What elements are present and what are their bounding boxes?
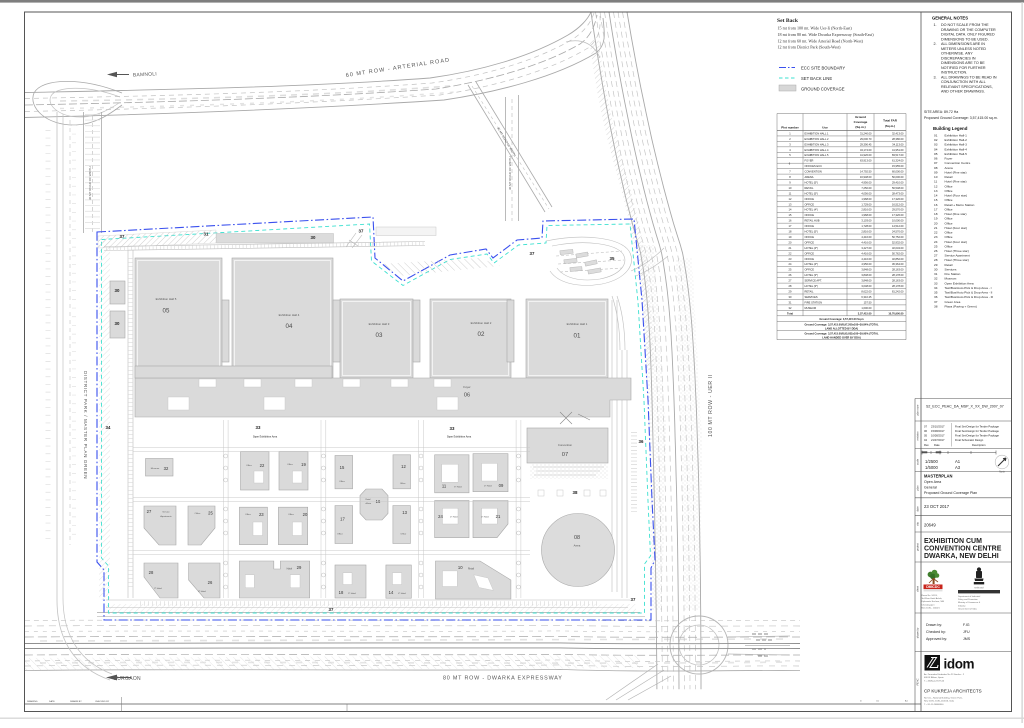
svg-text:Government of India: Government of India: [958, 607, 978, 610]
svg-text:4* Hotel: 4* Hotel: [484, 485, 492, 488]
svg-text:S2_ECC_PEAC_DA_MSP_X_XX_DW_200: S2_ECC_PEAC_DA_MSP_X_XX_DW_2007_07: [926, 405, 1004, 409]
svg-text:OTHERWISE. ANY: OTHERWISE. ANY: [941, 52, 973, 56]
svg-text:RELEVANT SPECIFICATIONS,: RELEVANT SPECIFICATIONS,: [941, 85, 993, 89]
svg-text:Open Exhibition Area: Open Exhibition Area: [945, 281, 974, 285]
svg-text:36: 36: [639, 439, 644, 444]
svg-text:F.IG: F.IG: [963, 623, 970, 627]
svg-text:33: 33: [934, 281, 938, 285]
svg-text:34: 34: [934, 286, 938, 290]
svg-text:EXHIBITION HALL 5: EXHIBITION HALL 5: [805, 153, 830, 157]
svg-text:28: 28: [934, 258, 938, 262]
svg-text:Set Back: Set Back: [777, 18, 799, 24]
svg-text:OFFICE: OFFICE: [805, 240, 815, 244]
svg-text:01: 01: [574, 333, 581, 340]
svg-text:36: 36: [934, 295, 938, 299]
svg-text:General: General: [924, 486, 937, 490]
svg-text:18: 18: [339, 590, 344, 595]
svg-text:Hotel: Hotel: [287, 568, 293, 571]
svg-text:Office: Office: [945, 198, 953, 202]
svg-text:OFFICE: OFFICE: [805, 257, 815, 261]
svg-text:50,752.00: 50,752.00: [892, 235, 904, 239]
svg-text:80 MT ROW - DWARKA EXPRESSWAY: 80 MT ROW - DWARKA EXPRESSWAY: [443, 676, 563, 682]
svg-text:A3: A3: [955, 465, 961, 470]
svg-text:Taxi/Bus/Auto Pick & Drop Area: Taxi/Bus/Auto Pick & Drop Area - III: [945, 295, 994, 299]
svg-text:INSTRUCTION.: INSTRUCTION.: [941, 71, 967, 75]
svg-text:28,380.00: 28,380.00: [892, 137, 904, 141]
svg-text:36,364.00: 36,364.00: [892, 262, 904, 266]
svg-text:16,512.00: 16,512.00: [892, 202, 904, 206]
svg-text:81,242.00: 81,242.00: [892, 289, 904, 293]
svg-text:14,792.50: 14,792.50: [860, 170, 872, 174]
svg-text:26: 26: [208, 580, 213, 585]
svg-text:MUSEUM: MUSEUM: [805, 306, 817, 310]
svg-text:LAND ALLOTTED BY DDA): LAND ALLOTTED BY DDA): [825, 326, 858, 330]
svg-text:DRAWN BY: DRAWN BY: [70, 700, 82, 703]
svg-text:GROUND COVERAGE: GROUND COVERAGE: [801, 87, 845, 92]
svg-text:34: 34: [106, 425, 111, 430]
svg-text:10/08/2017: 10/08/2017: [931, 434, 945, 438]
svg-text:ALL DRAWINGS TO BE READ IN: ALL DRAWINGS TO BE READ IN: [941, 75, 997, 79]
svg-text:29: 29: [297, 565, 302, 570]
svg-text:Foyer: Foyer: [463, 385, 470, 389]
svg-text:14: 14: [389, 590, 394, 595]
svg-text:30 MT ROAD OF WIDTH: 30 MT ROAD OF WIDTH: [88, 166, 92, 200]
svg-text:23 OCT 2017: 23 OCT 2017: [924, 504, 950, 509]
svg-text:HOTEL (3*): HOTEL (3*): [805, 273, 819, 277]
svg-text:28,473.00: 28,473.00: [892, 191, 904, 195]
svg-text:37: 37: [631, 597, 636, 602]
svg-text:1.: 1.: [934, 23, 937, 27]
svg-text:OFFICE: OFFICE: [805, 235, 815, 239]
svg-text:3.: 3.: [934, 75, 937, 79]
svg-text:T. +91-11-26868500: T. +91-11-26868500: [924, 704, 944, 706]
svg-text:Office: Office: [337, 534, 343, 536]
svg-text:41,926.00: 41,926.00: [860, 153, 872, 157]
svg-text:Taxi/Bus/Auto Pick & Drop Area: Taxi/Bus/Auto Pick & Drop Area - II: [945, 291, 993, 295]
svg-text:Hotel (Four star): Hotel (Four star): [945, 240, 968, 244]
svg-text:Retail: Retail: [945, 175, 953, 179]
svg-text:33: 33: [450, 426, 455, 431]
svg-text:24,570.00: 24,570.00: [892, 230, 904, 234]
svg-text:17,326.00: 17,326.00: [892, 197, 904, 201]
svg-text:31: 31: [204, 232, 209, 237]
svg-text:Office: Office: [401, 534, 407, 536]
svg-text:17: 17: [934, 207, 938, 211]
svg-text:21: 21: [496, 514, 501, 519]
svg-text:56,548.00: 56,548.00: [892, 186, 904, 190]
svg-text:03: 03: [376, 332, 383, 339]
svg-text:Use: Use: [822, 126, 828, 130]
svg-text:OFFICE: OFFICE: [805, 224, 815, 228]
svg-text:30: 30: [115, 321, 120, 326]
svg-text:1,600.00: 1,600.00: [861, 306, 872, 310]
svg-text:idom: idom: [944, 657, 975, 672]
svg-text:3,103.00: 3,103.00: [861, 219, 872, 223]
svg-text:37: 37: [359, 229, 364, 234]
svg-text:32,413.00: 32,413.00: [892, 131, 904, 135]
svg-text:Coverage: Coverage: [854, 120, 868, 124]
svg-text:43,174.00: 43,174.00: [860, 148, 872, 152]
svg-text:SERVICE APT.: SERVICE APT.: [805, 279, 823, 283]
svg-text:25: 25: [934, 244, 938, 248]
svg-text:Services: Services: [945, 267, 957, 271]
svg-text:New Delhi, Delhi-110016, India: New Delhi, Delhi-110016, India: [924, 701, 955, 703]
svg-text:Service Apartment: Service Apartment: [945, 254, 970, 258]
svg-text:Exhibition Hall-1: Exhibition Hall-1: [945, 134, 968, 138]
svg-text:Retail: Retail: [945, 263, 953, 267]
svg-text:4,416.00: 4,416.00: [861, 240, 872, 244]
svg-text:(Sq.m.): (Sq.m.): [855, 125, 865, 129]
svg-text:16,948.00: 16,948.00: [860, 175, 872, 179]
svg-text:Office: Office: [288, 514, 294, 516]
svg-text:28: 28: [149, 570, 154, 575]
svg-text:5* Hotel: 5* Hotel: [454, 486, 462, 489]
svg-text:Final Set-Design for Tender Pa: Final Set-Design for Tender Package: [955, 424, 999, 428]
svg-text:METERS UNLESS NOTED: METERS UNLESS NOTED: [941, 47, 986, 51]
svg-text:OFFICE: OFFICE: [805, 268, 815, 272]
svg-text:Office: Office: [945, 217, 953, 221]
svg-text:CONVENTION: CONVENTION: [805, 170, 822, 174]
svg-text:6,310.25: 6,310.25: [861, 295, 872, 299]
svg-text:2,816.00: 2,816.00: [861, 208, 872, 212]
svg-text:DIGITAL DATA. ONLY FIGURED: DIGITAL DATA. ONLY FIGURED: [941, 33, 995, 37]
svg-text:37: 37: [934, 300, 938, 304]
svg-text:1,729.00: 1,729.00: [861, 202, 872, 206]
svg-text:Arena: Arena: [574, 545, 581, 548]
svg-text:NOTIFIED FOR FURTHER: NOTIFIED FOR FURTHER: [941, 66, 986, 70]
svg-text:Convention: Convention: [558, 443, 573, 447]
svg-text:Hotel (Five star): Hotel (Five star): [945, 212, 967, 216]
svg-text:Hotel (Three star): Hotel (Three star): [945, 258, 969, 262]
svg-text:Ground: Ground: [855, 115, 866, 119]
svg-text:Office: Office: [945, 244, 953, 248]
svg-text:HOTEL (3*): HOTEL (3*): [805, 284, 819, 288]
svg-text:32: 32: [934, 277, 938, 281]
svg-text:New Delhi - 110021: New Delhi - 110021: [922, 607, 941, 609]
svg-text:Office: Office: [945, 189, 953, 193]
svg-text:1/2500: 1/2500: [925, 459, 938, 464]
svg-text:HOTEL (5*): HOTEL (5*): [805, 180, 819, 184]
svg-text:Arena: Arena: [945, 166, 954, 170]
svg-text:Drawn by:: Drawn by:: [926, 623, 942, 627]
svg-text:8,622.00: 8,622.00: [861, 289, 872, 293]
svg-text:Total FAR: Total FAR: [883, 119, 898, 123]
svg-text:11: 11: [934, 180, 937, 184]
svg-text:41,951.00: 41,951.00: [892, 148, 904, 152]
svg-text:MASTERPLAN: MASTERPLAN: [924, 474, 952, 479]
svg-text:16: 16: [934, 203, 938, 207]
svg-text:38: 38: [934, 304, 938, 308]
svg-text:Office: Office: [287, 464, 293, 466]
svg-text:Green Area: Green Area: [945, 300, 961, 304]
svg-text:HOTEL (4*): HOTEL (4*): [805, 208, 819, 212]
svg-text:28,163.00: 28,163.00: [892, 268, 904, 272]
svg-text:4,056.00: 4,056.00: [861, 191, 872, 195]
svg-text:RETAIL: RETAIL: [805, 186, 814, 190]
svg-text:34,113.00: 34,113.00: [892, 142, 904, 146]
svg-text:DISTRICT PARK / MASTER PLAN GR: DISTRICT PARK / MASTER PLAN GREEN: [83, 371, 88, 479]
svg-text:23: 23: [934, 235, 938, 239]
svg-text:Office: Office: [945, 231, 953, 235]
svg-text:3rd Floor Hotel Ashok,: 3rd Floor Hotel Ashok,: [922, 597, 943, 600]
svg-text:02: 02: [934, 138, 938, 142]
svg-text:17,326.00: 17,326.00: [892, 213, 904, 217]
svg-text:03: 03: [934, 143, 938, 147]
svg-text:2.: 2.: [934, 42, 937, 46]
svg-text:1/5000: 1/5000: [925, 465, 938, 470]
svg-text:05: 05: [163, 308, 170, 315]
svg-text:28,178.00: 28,178.00: [892, 273, 904, 277]
svg-text:24: 24: [934, 240, 938, 244]
svg-text:12: 12: [934, 184, 938, 188]
svg-text:EXHIBITION HALL 2: EXHIBITION HALL 2: [805, 137, 830, 141]
svg-text:HOTEL (4*): HOTEL (4*): [805, 246, 819, 250]
svg-text:3,848.00: 3,848.00: [861, 279, 872, 283]
svg-text:Proposed Ground Coverage: 3,57: Proposed Ground Coverage: 3,57,415.00 sq…: [924, 116, 998, 120]
svg-text:30 MT ROAD OF WIDTH: 30 MT ROAD OF WIDTH: [508, 156, 512, 190]
svg-text:RETAIL: RETAIL: [805, 289, 814, 293]
svg-text:client: client: [916, 586, 920, 592]
svg-text:31,240.00: 31,240.00: [860, 131, 872, 135]
svg-text:32,852.00: 32,852.00: [892, 257, 904, 261]
svg-text:24: 24: [438, 514, 443, 519]
svg-text:Final Set-Design for Tender Pa: Final Set-Design for Tender Package: [955, 429, 999, 433]
svg-text:Office: Office: [945, 184, 953, 188]
svg-text:63,913.00: 63,913.00: [860, 159, 872, 163]
svg-text:Ground Coverage: 3,57,415.00/8: Ground Coverage: 3,57,415.00/8,97,200x10…: [804, 323, 878, 327]
svg-text:Office: Office: [339, 481, 345, 483]
svg-text:12 mt from 60 mt. Wide Arteria: 12 mt from 60 mt. Wide Arterial Road (No…: [778, 38, 864, 43]
svg-text:Exhibition Hall-3: Exhibition Hall-3: [945, 143, 968, 147]
svg-text:50,762.00: 50,762.00: [892, 251, 904, 255]
svg-text:29: 29: [934, 263, 938, 267]
svg-text:33: 33: [256, 425, 261, 430]
svg-text:DRAWING OR THE COMPUTER: DRAWING OR THE COMPUTER: [941, 28, 996, 32]
svg-text:RETAIL HUB: RETAIL HUB: [805, 219, 820, 223]
svg-text:project: project: [916, 543, 920, 552]
svg-text:Exhibition Hall 3: Exhibition Hall 3: [369, 322, 390, 326]
svg-text:OFFICES ECC: OFFICES ECC: [805, 164, 823, 168]
svg-text:plan num: plan num: [916, 404, 920, 417]
svg-text:DISCREPANCIES IN: DISCREPANCIES IN: [941, 56, 976, 60]
svg-text:20: 20: [303, 512, 308, 517]
svg-text:4,416.00: 4,416.00: [861, 257, 872, 261]
svg-text:Ground Coverage: 3,57,415.00 S: Ground Coverage: 3,57,415.00 Sq.m: [819, 317, 864, 321]
svg-text:4* Hotel: 4* Hotel: [450, 516, 458, 519]
svg-text:4,956.00: 4,956.00: [861, 262, 872, 266]
svg-text:08: 08: [934, 166, 938, 170]
svg-text:DRAWING: DRAWING: [27, 700, 38, 703]
svg-text:23/10/2017: 23/10/2017: [931, 424, 945, 428]
svg-text:14: 14: [934, 194, 938, 198]
svg-text:Room No. 341 B,: Room No. 341 B,: [922, 595, 938, 597]
svg-text:4,956.00: 4,956.00: [861, 180, 872, 184]
svg-text:OFFICE: OFFICE: [805, 202, 815, 206]
svg-text:4,416.00: 4,416.00: [861, 235, 872, 239]
svg-text:01: 01: [934, 134, 938, 138]
svg-text:19: 19: [934, 217, 938, 221]
svg-text:09: 09: [934, 170, 938, 174]
svg-text:सत्यमेव जयते: सत्यमेव जयते: [974, 587, 984, 590]
svg-text:Chanakyapuri: Chanakyapuri: [922, 603, 935, 606]
svg-text:23: 23: [259, 512, 264, 517]
svg-text:10,000.00: 10,000.00: [892, 219, 904, 223]
svg-text:04: 04: [286, 323, 293, 330]
svg-text:+Metro: +Metro: [365, 502, 372, 505]
svg-text:ECC SITE BOUNDARY: ECC SITE BOUNDARY: [801, 66, 845, 71]
svg-text:CP KUKREJA ARCHITECTS: CP KUKREJA ARCHITECTS: [924, 689, 982, 694]
svg-text:date: date: [916, 506, 920, 512]
svg-text:61,324.00: 61,324.00: [892, 159, 904, 163]
svg-text:Foyer: Foyer: [945, 157, 953, 161]
svg-text:4* Hotel: 4* Hotel: [481, 516, 489, 519]
svg-text:3* Hotel: 3* Hotel: [154, 587, 162, 590]
svg-text:Date: Date: [934, 443, 940, 447]
svg-text:FIRE STATION: FIRE STATION: [805, 300, 823, 304]
svg-text:Office: Office: [400, 483, 406, 485]
svg-text:07: 07: [934, 161, 938, 165]
svg-text:3,427.00: 3,427.00: [861, 246, 872, 250]
svg-text:Plaza (Paving + Green): Plaza (Paving + Green): [945, 304, 977, 308]
svg-text:BAMNOLI: BAMNOLI: [133, 71, 157, 78]
svg-text:37: 37: [530, 251, 535, 256]
svg-text:Office: Office: [245, 514, 251, 516]
svg-text:SITE AREA: 89.72 Ha: SITE AREA: 89.72 Ha: [924, 110, 958, 114]
svg-text:37: 37: [120, 234, 125, 239]
svg-text:09: 09: [499, 483, 504, 488]
svg-text:Convention Centre: Convention Centre: [945, 161, 971, 165]
svg-text:1,968.00: 1,968.00: [861, 213, 872, 217]
svg-text:Policy and Promotion: Policy and Promotion: [958, 598, 978, 601]
svg-text:drawn by: drawn by: [916, 627, 920, 638]
svg-text:JMS: JMS: [963, 637, 971, 641]
svg-text:Fire Station: Fire Station: [945, 272, 961, 276]
svg-text:Department of Industrial: Department of Industrial: [958, 595, 981, 598]
svg-text:SET BACK LINE: SET BACK LINE: [801, 76, 832, 81]
svg-text:DIMENSIONS ARE TO BE: DIMENSIONS ARE TO BE: [941, 61, 985, 65]
svg-text:Open Exhibition Area: Open Exhibition Area: [253, 436, 278, 439]
svg-text:CHECKED BY: CHECKED BY: [95, 701, 110, 703]
svg-text:27: 27: [934, 254, 938, 258]
svg-text:EXHIBITION HALL 1: EXHIBITION HALL 1: [805, 131, 830, 135]
svg-text:100 MT ROW - UER II: 100 MT ROW - UER II: [708, 374, 714, 437]
svg-text:31: 31: [934, 272, 938, 276]
svg-text:7,250.00: 7,250.00: [861, 186, 872, 190]
svg-text:15/08/2017: 15/08/2017: [931, 429, 945, 433]
svg-text:3* Hotel: 3* Hotel: [198, 590, 206, 593]
svg-text:29,570.00: 29,570.00: [892, 208, 904, 212]
svg-text:plan: plan: [916, 485, 920, 491]
svg-text:DIMENSIONS TO BE USED.: DIMENSIONS TO BE USED.: [941, 37, 989, 41]
svg-text:18 mt from 80 mt. Wide Dwarka: 18 mt from 80 mt. Wide Dwarka Expressway…: [778, 32, 875, 37]
svg-text:30: 30: [311, 235, 316, 240]
svg-text:2,816.00: 2,816.00: [861, 230, 872, 234]
svg-text:Description: Description: [972, 443, 986, 447]
svg-text:30: 30: [115, 288, 120, 293]
svg-text:29,390.45: 29,390.45: [860, 142, 872, 146]
svg-text:08: 08: [574, 535, 580, 541]
svg-text:OFFICE: OFFICE: [805, 197, 815, 201]
svg-text:12 mt from District Park (Sout: 12 mt from District Park (South-West): [778, 45, 842, 50]
svg-text:1,968.00: 1,968.00: [861, 197, 872, 201]
svg-text:Av. Zarandoa Etorbidea No 23 S: Av. Zarandoa Etorbidea No 23 Sarriko - 2: [924, 673, 965, 676]
svg-text:3,57,415.00: 3,57,415.00: [858, 311, 872, 315]
svg-text:18: 18: [934, 212, 938, 216]
svg-text:CONJUNCTION WITH ALL: CONJUNCTION WITH ALL: [941, 80, 986, 84]
svg-text:06: 06: [924, 429, 927, 433]
svg-text:15: 15: [340, 465, 345, 470]
svg-text:3,848.00: 3,848.00: [861, 273, 872, 277]
svg-text:Retail + Metro Station: Retail + Metro Station: [945, 203, 975, 207]
svg-text:Approved by:: Approved by:: [926, 637, 947, 641]
svg-text:28,178.00: 28,178.00: [892, 284, 904, 288]
svg-text:Proposed Ground Coverage Plan: Proposed Ground Coverage Plan: [924, 491, 977, 495]
svg-text:Ground Coverage: 3,57,415.00/8: Ground Coverage: 3,57,415.00/8,95,932x10…: [804, 332, 878, 336]
svg-text:DMICDC: DMICDC: [926, 585, 940, 589]
svg-text:EXHIBITION HALL 4: EXHIBITION HALL 4: [805, 148, 830, 152]
svg-text:No 51-L, National Building, Gr: No 51-L, National Building, Green Park,: [924, 697, 963, 700]
svg-text:11: 11: [442, 484, 447, 489]
svg-text:Total: Total: [787, 311, 793, 315]
svg-text:5* Hotel: 5* Hotel: [348, 592, 356, 595]
svg-text:15 mt from 100 mt. Wide Uer-Ii: 15 mt from 100 mt. Wide Uer-Ii (North-Ea…: [778, 26, 853, 31]
svg-text:04: 04: [924, 438, 927, 442]
svg-text:83,517.00: 83,517.00: [892, 153, 904, 157]
svg-text:50,000.00: 50,000.00: [892, 175, 904, 179]
svg-text:21: 21: [934, 226, 938, 230]
svg-text:Museum: Museum: [945, 277, 957, 281]
svg-text:AND OTHER DRAWINGS.: AND OTHER DRAWINGS.: [941, 90, 985, 94]
svg-text:37: 37: [329, 607, 334, 612]
svg-text:29,000.70: 29,000.70: [860, 137, 872, 141]
svg-text:DO NOT SCALE FROM THE: DO NOT SCALE FROM THE: [941, 23, 989, 27]
svg-text:Exhibition Hall 2: Exhibition Hall 2: [471, 321, 492, 325]
svg-text:Hotel (Four star): Hotel (Four star): [945, 194, 968, 198]
svg-text:32: 32: [164, 466, 169, 471]
svg-text:Diplomatic Enclave, 50B: Diplomatic Enclave, 50B: [922, 600, 945, 603]
svg-text:15: 15: [934, 198, 938, 202]
svg-text:(Sq.m.): (Sq.m.): [885, 124, 895, 128]
svg-text:32,034.00: 32,034.00: [892, 246, 904, 250]
svg-text:07: 07: [562, 452, 568, 458]
svg-text:Open Area: Open Area: [924, 480, 941, 484]
svg-text:Retail: Retail: [468, 568, 475, 571]
svg-text:60,000.00: 60,000.00: [892, 170, 904, 174]
svg-text:Exhibition Hall 5: Exhibition Hall 5: [156, 297, 177, 301]
svg-text:Exhibition Hall 1: Exhibition Hall 1: [567, 322, 588, 326]
svg-text:revision: revision: [916, 431, 920, 440]
svg-text:Rev: Rev: [924, 443, 929, 447]
svg-text:Industry: Industry: [958, 604, 966, 607]
svg-text:CONVENTION CENTRE: CONVENTION CENTRE: [924, 546, 1002, 553]
svg-text:1,728.00: 1,728.00: [861, 224, 872, 228]
svg-text:Building Legend: Building Legend: [933, 126, 968, 131]
svg-text:Exhibition Hall 4: Exhibition Hall 4: [279, 313, 300, 317]
svg-text:19: 19: [301, 462, 306, 467]
svg-text:ARENA: ARENA: [805, 175, 814, 179]
svg-text:EXHIBITION HALL 3: EXHIBITION HALL 3: [805, 142, 830, 146]
svg-text:157.50: 157.50: [864, 300, 872, 304]
svg-text:Hotel (Five star): Hotel (Five star): [945, 180, 967, 184]
svg-text:05: 05: [924, 434, 927, 438]
svg-text:Museum: Museum: [151, 468, 160, 470]
svg-text:21/07/2017: 21/07/2017: [931, 438, 945, 442]
svg-text:Hotel (Four star): Hotel (Four star): [945, 226, 968, 230]
svg-text:GENERAL NOTES: GENERAL NOTES: [932, 16, 968, 21]
svg-text:28,163.00: 28,163.00: [892, 279, 904, 283]
svg-text:HOTEL (4*): HOTEL (4*): [805, 262, 819, 266]
svg-text:Hotel (Five star): Hotel (Five star): [945, 170, 967, 174]
